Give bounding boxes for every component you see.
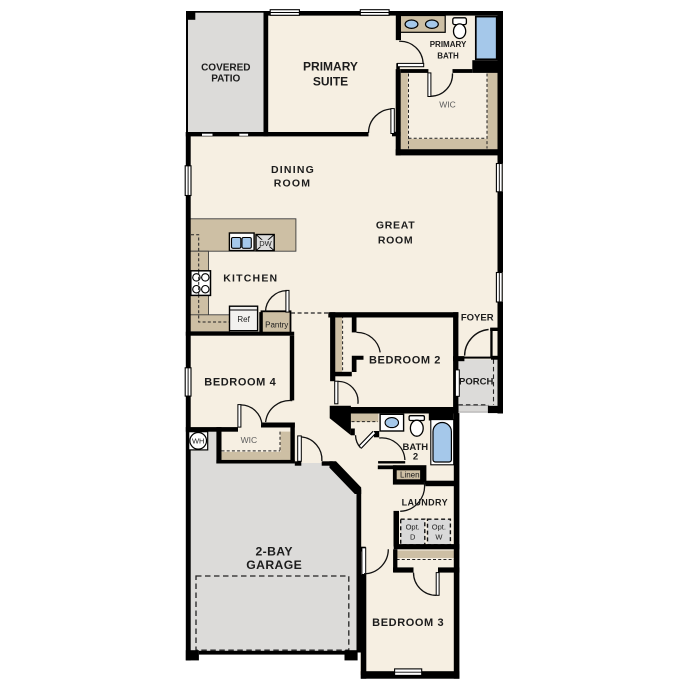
svg-text:KITCHEN: KITCHEN [223, 273, 278, 285]
svg-text:WIC: WIC [241, 435, 258, 445]
svg-text:ROOM: ROOM [378, 235, 413, 247]
svg-text:Linen: Linen [400, 470, 420, 479]
svg-text:DINING: DINING [271, 164, 315, 176]
svg-text:DW: DW [259, 239, 272, 248]
svg-text:W: W [435, 533, 443, 542]
svg-text:2: 2 [413, 451, 418, 462]
svg-text:BEDROOM 2: BEDROOM 2 [369, 355, 441, 367]
svg-text:WH: WH [192, 437, 205, 446]
svg-text:2-BAY: 2-BAY [255, 544, 292, 558]
svg-text:BATH: BATH [437, 52, 459, 61]
svg-text:PORCH: PORCH [459, 376, 493, 387]
svg-text:PRIMARY: PRIMARY [430, 40, 467, 49]
svg-text:D: D [410, 533, 416, 542]
svg-text:COVERED: COVERED [201, 62, 250, 73]
svg-text:PATIO: PATIO [211, 74, 240, 85]
svg-text:Pantry: Pantry [265, 320, 288, 329]
svg-text:WIC: WIC [439, 99, 456, 109]
svg-text:PRIMARY: PRIMARY [303, 60, 358, 74]
svg-text:Opt.: Opt. [406, 523, 420, 532]
svg-text:BEDROOM 4: BEDROOM 4 [204, 377, 276, 389]
svg-text:Ref: Ref [237, 315, 250, 324]
svg-text:ROOM: ROOM [274, 178, 311, 190]
svg-text:Opt.: Opt. [432, 523, 446, 532]
svg-text:BEDROOM 3: BEDROOM 3 [372, 617, 444, 629]
svg-text:GARAGE: GARAGE [246, 558, 302, 572]
svg-text:SUITE: SUITE [313, 74, 348, 88]
svg-text:LAUNDRY: LAUNDRY [402, 497, 448, 507]
svg-text:GREAT: GREAT [376, 220, 415, 232]
svg-text:FOYER: FOYER [461, 312, 494, 323]
